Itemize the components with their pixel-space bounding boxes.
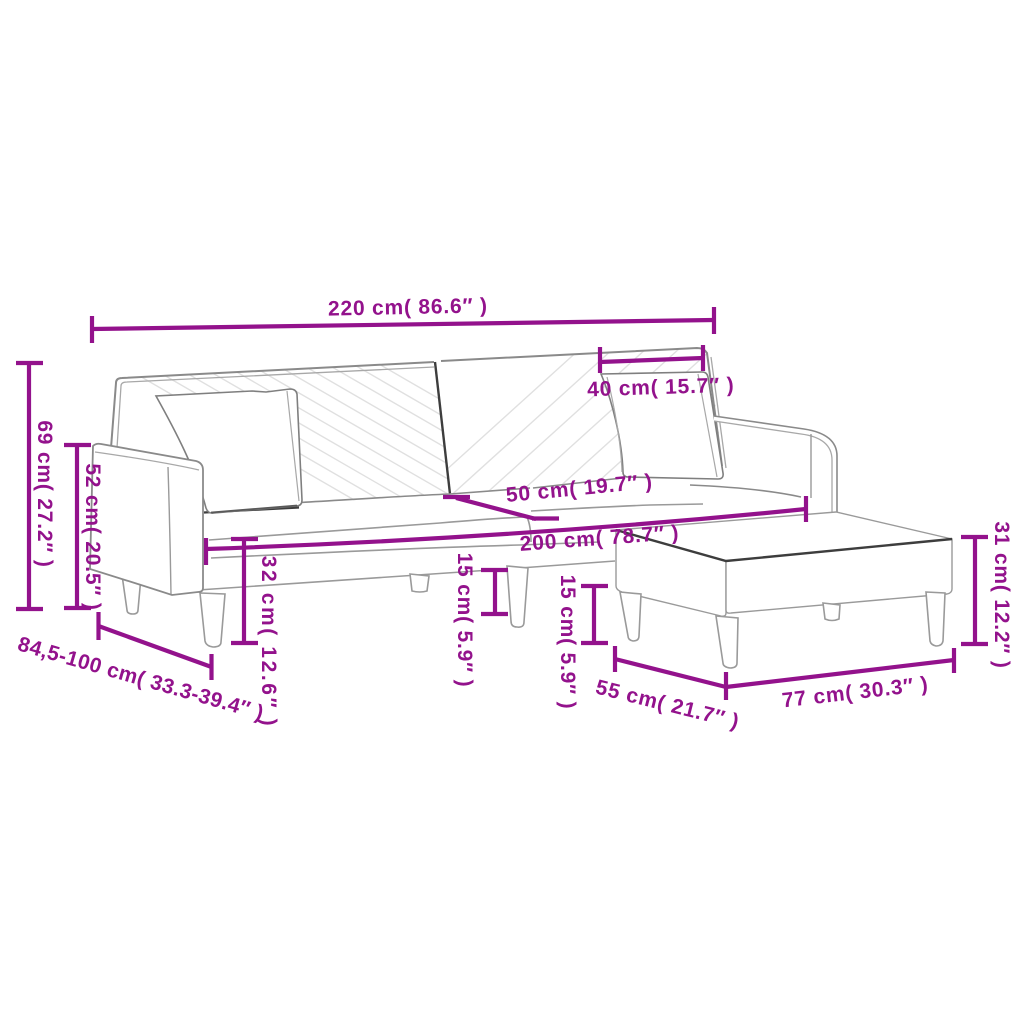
svg-text:220 cm( 86.6″ ): 220 cm( 86.6″ ) — [328, 294, 488, 320]
svg-text:31 cm( 12.2″ ): 31 cm( 12.2″ ) — [990, 521, 1013, 668]
svg-text:52 cm( 20.5″ ): 52 cm( 20.5″ ) — [81, 463, 104, 610]
svg-text:15 cm( 5.9″ ): 15 cm( 5.9″ ) — [556, 575, 579, 710]
svg-text:32 cm( 12.6″ ): 32 cm( 12.6″ ) — [257, 556, 280, 729]
svg-text:40 cm( 15.7″ ): 40 cm( 15.7″ ) — [587, 374, 735, 402]
svg-text:69 cm( 27.2″ ): 69 cm( 27.2″ ) — [33, 420, 56, 567]
svg-text:15 cm( 5.9″ ): 15 cm( 5.9″ ) — [453, 553, 476, 688]
